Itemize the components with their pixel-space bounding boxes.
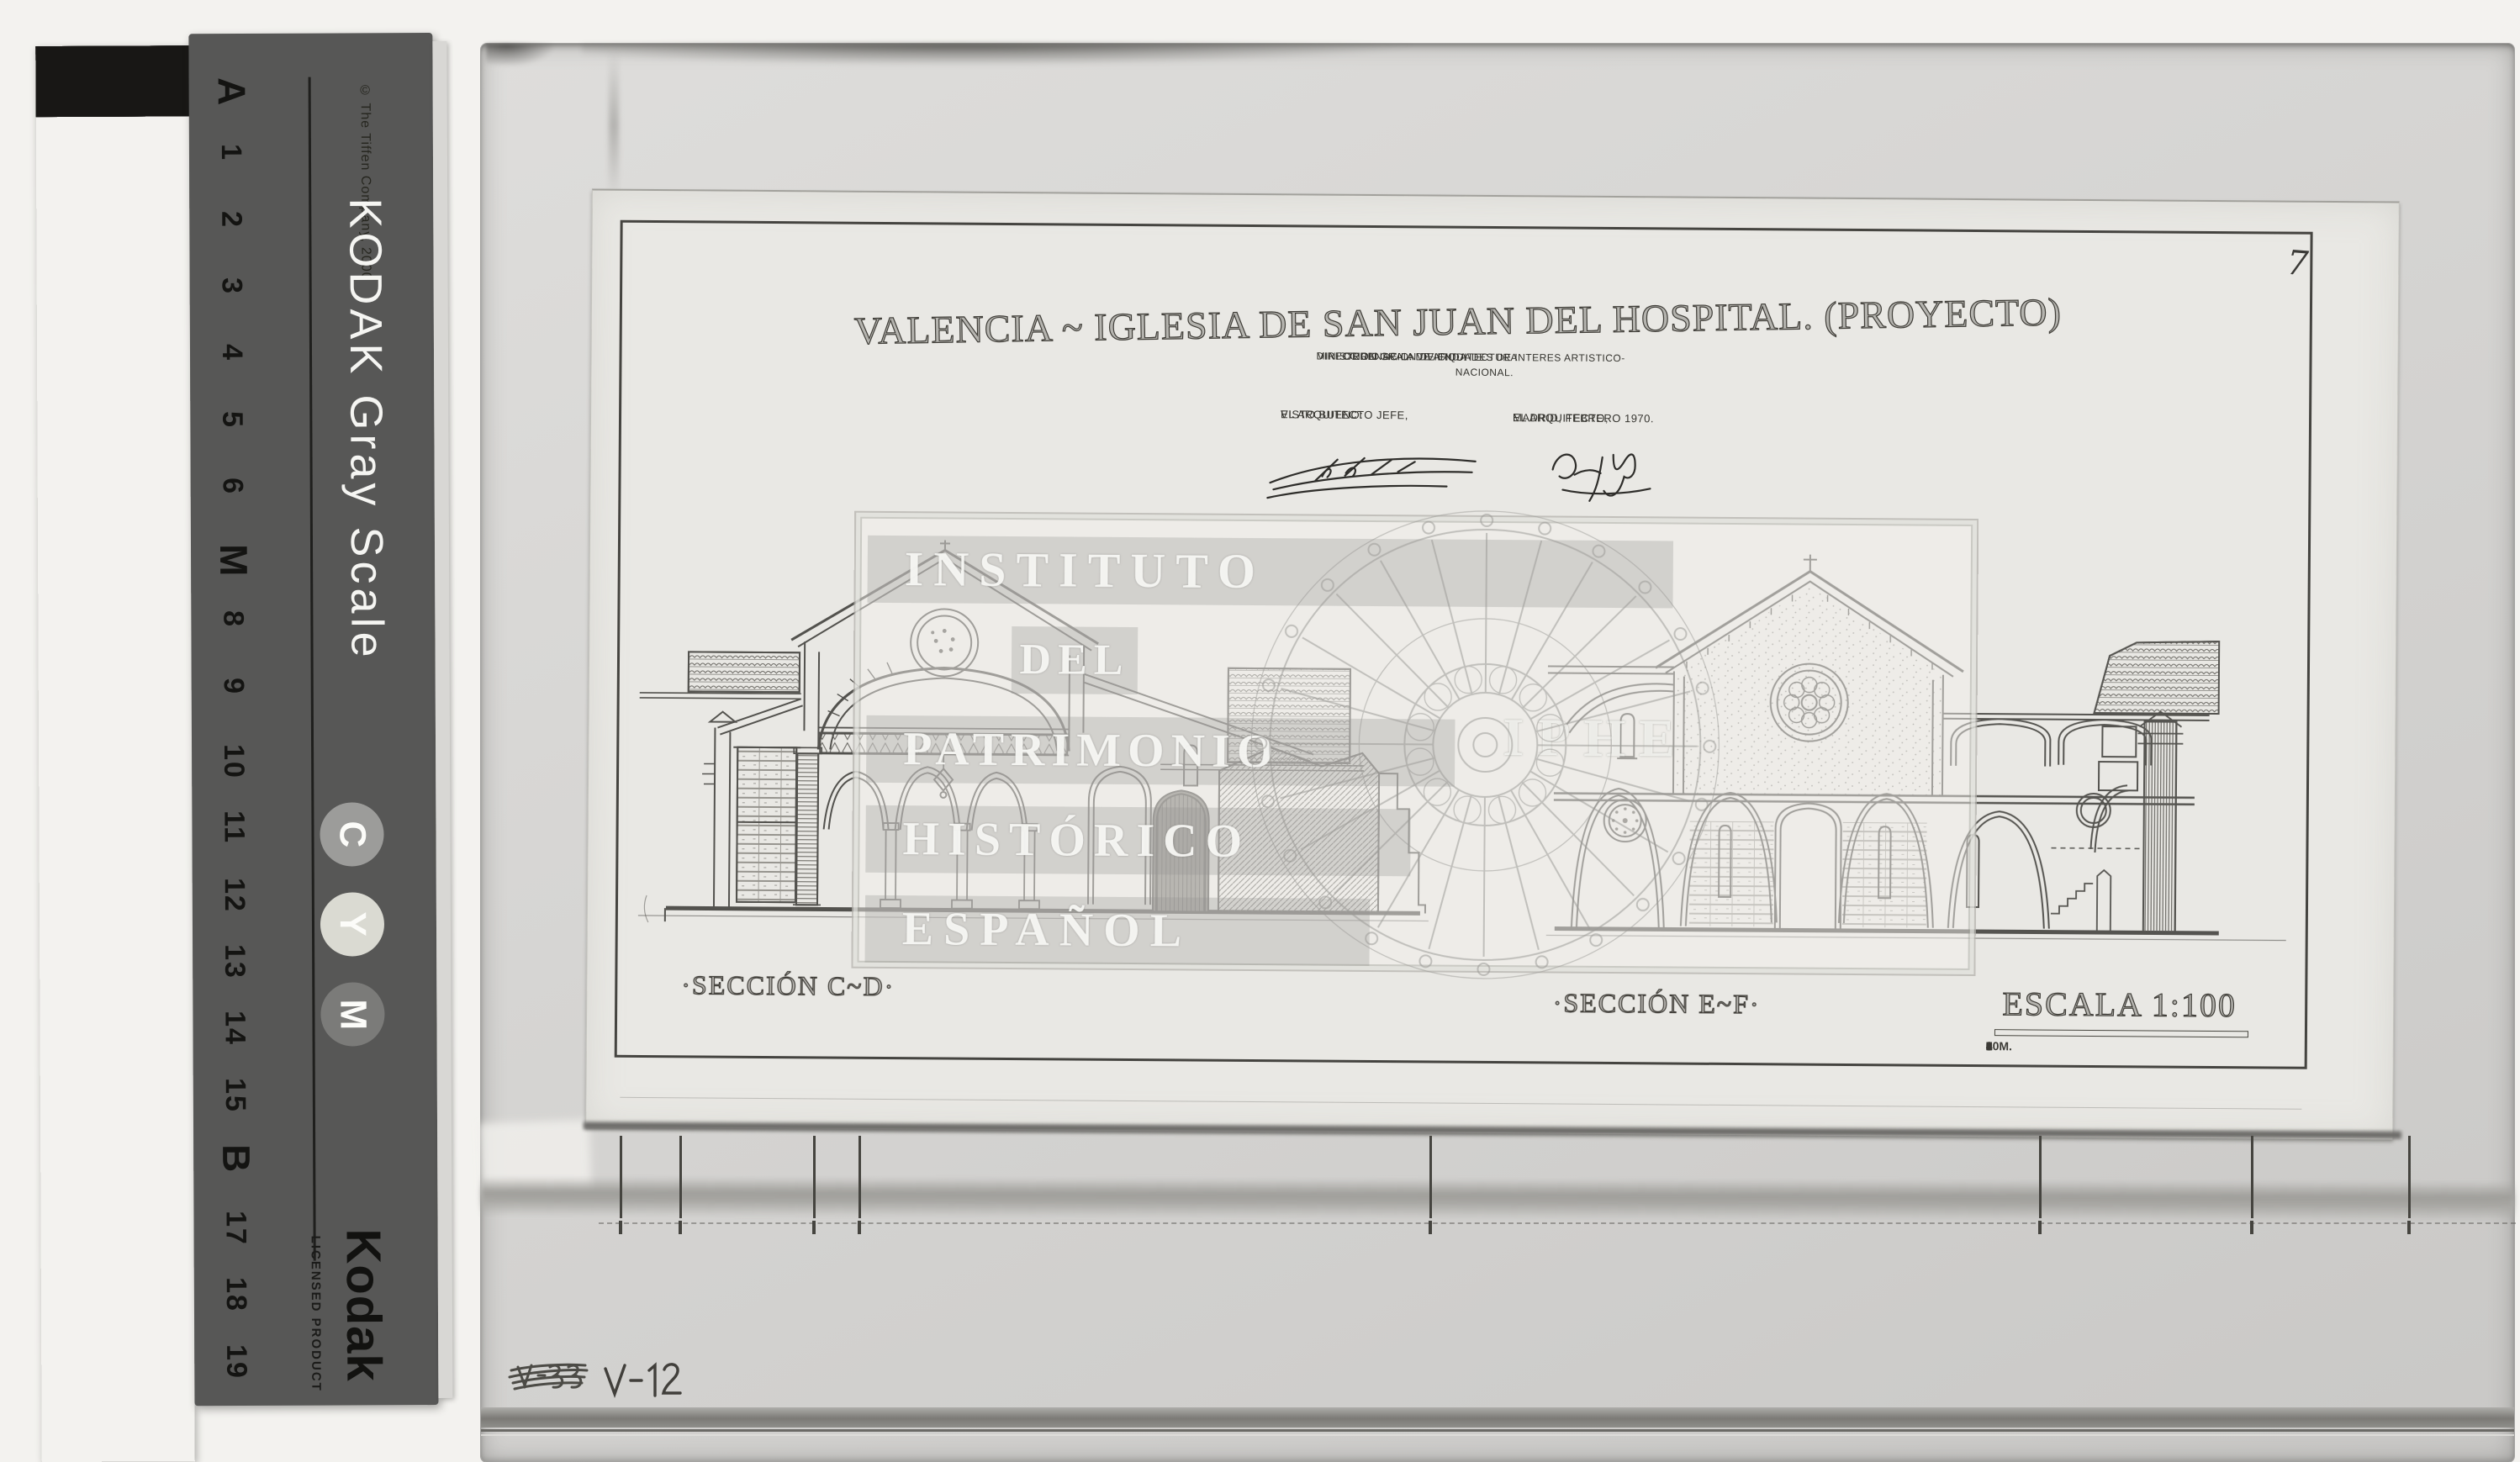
strip-label-panel: A123456M89101112131415B171819 © The Tiff…: [188, 33, 438, 1406]
step-label-18: 18: [219, 1277, 252, 1312]
drawing-sheet: 7 VALENCIA ~ IGLESIA DE SAN JUAN DEL HOS…: [585, 189, 2400, 1140]
color-circle-M: M: [320, 982, 384, 1046]
step-labels: A123456M89101112131415B171819: [188, 33, 432, 34]
pin-mark-3: [858, 1136, 861, 1218]
step-label-10: 10: [217, 744, 250, 779]
color-circle-Y: Y: [320, 892, 384, 956]
rose-bud-ornament: [1674, 628, 1686, 640]
step-label-9: 9: [217, 678, 250, 695]
cmy-reference-circles: CYM: [188, 33, 432, 34]
rose-bud-ornament: [1368, 544, 1380, 556]
color-circle-label-M: M: [331, 999, 373, 1030]
gray-patch-19: [35, 45, 188, 117]
rose-bud-ornament: [1255, 737, 1266, 749]
rose-bud-ornament: [1590, 934, 1602, 946]
corner-smudge: [486, 44, 553, 66]
step-label-6: 6: [216, 478, 249, 495]
panel-divider-line: [309, 77, 316, 1261]
arquitecto-jefe-label: EL ARQUITECTO JEFE,: [1281, 407, 1408, 422]
pin-tick-3: [858, 1221, 861, 1234]
iphe-rose-window-watermark: [1239, 499, 1730, 990]
pin-tick-1: [679, 1221, 682, 1234]
ministry-line-3: ORDENACION DE CIUDADES DE INTERES ARTIST…: [1316, 349, 1652, 382]
rose-bud-ornament: [1696, 799, 1708, 810]
rose-spoke: [1484, 797, 1485, 957]
pin-mark-4: [1429, 1136, 1432, 1218]
pin-mark-1: [679, 1136, 682, 1218]
section-ef-label: ·SECCIÓN E~F·: [1539, 987, 1774, 1020]
step-label-3: 3: [215, 277, 248, 295]
gray-patch-column: [35, 45, 194, 1462]
rose-bud-ornament: [1286, 625, 1297, 637]
pin-tick-6: [2250, 1221, 2253, 1234]
pin-mark-6: [2251, 1136, 2253, 1218]
pin-mark-5: [2039, 1136, 2042, 1218]
step-label-M: M: [211, 544, 256, 578]
color-circle-C: C: [320, 802, 383, 866]
kodak-gray-scale-strip: A123456M89101112131415B171819 © The Tiff…: [35, 11, 456, 1462]
pin-tick-7: [2407, 1221, 2411, 1234]
arquitecto-label: EL ARQUITECTO,: [1513, 410, 1609, 425]
rose-bud-ornament: [1593, 546, 1604, 557]
handwritten-reference-numbers: [506, 1355, 683, 1406]
photo-bottom-edge-line: [481, 1429, 2514, 1432]
rose-bud-ornament: [1697, 683, 1709, 694]
kodak-gray-scale-label: KODAK Gray Scale: [339, 198, 393, 661]
rose-bud-ornament: [1481, 515, 1492, 526]
rose-bud-ornament: [1423, 522, 1434, 534]
color-circle-label-Y: Y: [331, 912, 373, 937]
step-label-11: 11: [217, 810, 250, 844]
pin-tick-4: [1429, 1221, 1432, 1234]
scale-tick-11: 10M.: [1986, 1039, 2012, 1053]
scale-label: ESCALA 1:100: [1987, 984, 2252, 1025]
rose-bud-ornament: [1536, 956, 1548, 968]
rose-bud-ornament: [1704, 741, 1715, 752]
photo-bottom-edge-band: [481, 1407, 2514, 1428]
rose-bud-ornament: [1263, 679, 1275, 691]
section-cd-label: ·SECCIÓN C~D·: [670, 969, 906, 1002]
photo-bottom-highlight: [481, 1434, 2514, 1436]
color-circle-label-C: C: [330, 821, 372, 847]
pin-tick-5: [2038, 1221, 2042, 1234]
kodak-logo: Kodak: [335, 1228, 393, 1382]
rose-spoke: [1273, 743, 1433, 744]
step-label-12: 12: [218, 878, 251, 913]
pin-mark-2: [813, 1136, 816, 1218]
photograph: 7 VALENCIA ~ IGLESIA DE SAN JUAN DEL HOS…: [481, 44, 2514, 1462]
pin-tick-2: [812, 1221, 816, 1234]
rose-spoke: [1486, 533, 1487, 693]
step-label-13: 13: [218, 944, 251, 979]
archival-scan: A123456M89101112131415B171819 © The Tiff…: [0, 0, 2520, 1462]
dotted-edge-line: [599, 1222, 2516, 1224]
step-label-14: 14: [218, 1011, 251, 1046]
signature-arquitecto: [1545, 441, 1668, 505]
step-label-8: 8: [216, 610, 249, 628]
blurred-table-edge: [481, 1176, 2514, 1222]
step-label-2: 2: [214, 211, 247, 229]
rose-bud-ornament: [1673, 852, 1685, 864]
pin-mark-7: [2408, 1136, 2411, 1218]
rose-bud-ornament: [1477, 963, 1489, 975]
step-label-5: 5: [215, 410, 248, 428]
pin-tick-0: [619, 1221, 622, 1234]
signature-arquitecto-jefe: [1263, 441, 1487, 508]
pencil-line: [620, 1097, 2301, 1110]
vertical-streak: [609, 50, 619, 200]
step-label-A: A: [209, 77, 255, 107]
film-edge-smear: [582, 44, 1423, 66]
rose-bud-ornament: [1539, 522, 1551, 534]
rose-spoke: [1537, 745, 1697, 746]
step-label-19: 19: [219, 1344, 252, 1380]
watermark-line-2: DEL: [1012, 626, 1138, 694]
rose-bud-ornament: [1262, 795, 1274, 807]
step-label-4: 4: [215, 344, 248, 362]
page-number: 7: [2271, 242, 2324, 284]
rose-bud-ornament: [1322, 579, 1334, 591]
reference-v12: [605, 1364, 680, 1396]
rose-bud-ornament: [1284, 850, 1296, 862]
rose-bud-ornament: [1366, 932, 1377, 944]
rose-bud-ornament: [1419, 955, 1431, 967]
step-label-1: 1: [214, 144, 247, 161]
licensed-product-label: LICENSED PRODUCT: [309, 1236, 324, 1392]
step-label-B: B: [214, 1144, 259, 1174]
crossed-out-v33: [510, 1364, 587, 1389]
step-label-17: 17: [219, 1211, 251, 1246]
rose-bud-ornament: [1637, 899, 1649, 910]
rose-bud-ornament: [1319, 896, 1331, 908]
pin-mark-0: [620, 1136, 622, 1218]
rose-bud-ornament: [1639, 581, 1651, 593]
step-label-15: 15: [219, 1077, 251, 1112]
